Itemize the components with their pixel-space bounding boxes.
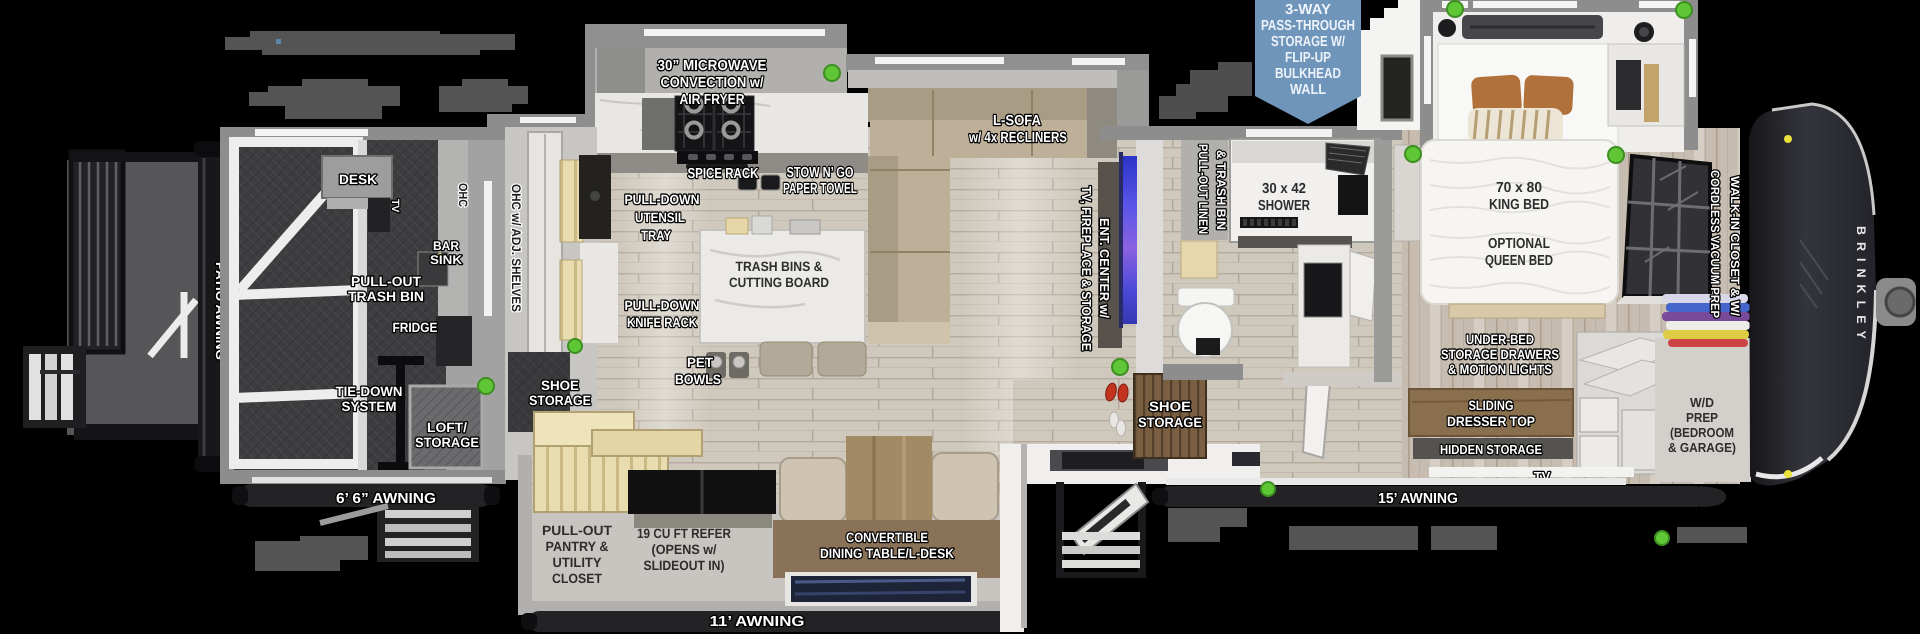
svg-text:SYSTEM: SYSTEM xyxy=(342,399,397,414)
svg-text:SLIDEOUT IN): SLIDEOUT IN) xyxy=(644,558,725,573)
svg-text:PANTRY &: PANTRY & xyxy=(546,539,609,554)
svg-text:W/D: W/D xyxy=(1690,395,1714,410)
svg-text:TRASH BIN: TRASH BIN xyxy=(348,289,424,304)
svg-text:PAPER TOWEL: PAPER TOWEL xyxy=(783,181,857,197)
svg-text:CONVERTIBLE: CONVERTIBLE xyxy=(846,530,928,545)
svg-text:BULKHEAD: BULKHEAD xyxy=(1275,66,1341,82)
svg-text:19 CU FT REFER: 19 CU FT REFER xyxy=(637,526,731,541)
svg-text:11’ AWNING: 11’ AWNING xyxy=(710,614,805,630)
svg-text:TV: TV xyxy=(389,199,401,212)
svg-text:STOW N’ GO: STOW N’ GO xyxy=(787,165,854,181)
svg-text:30 x 42: 30 x 42 xyxy=(1262,181,1306,197)
svg-text:DESK: DESK xyxy=(339,172,377,187)
svg-text:SPICE RACK: SPICE RACK xyxy=(688,166,759,182)
svg-text:OHC w/ ADJ. SHELVES: OHC w/ ADJ. SHELVES xyxy=(509,184,523,312)
svg-text:BAR: BAR xyxy=(433,239,459,253)
svg-text:30” MICROWAVE: 30” MICROWAVE xyxy=(658,58,767,74)
svg-text:OHC: OHC xyxy=(456,183,470,207)
svg-text:SHOE: SHOE xyxy=(541,378,579,393)
svg-text:PULL-OUT: PULL-OUT xyxy=(351,274,422,289)
svg-text:KNIFE RACK: KNIFE RACK xyxy=(627,315,697,330)
svg-text:STORAGE: STORAGE xyxy=(415,435,479,450)
svg-text:UNDER-BED: UNDER-BED xyxy=(1466,332,1534,347)
svg-text:LOFT/: LOFT/ xyxy=(427,420,467,435)
svg-text:STORAGE DRAWERS: STORAGE DRAWERS xyxy=(1441,347,1559,362)
svg-text:BOWLS: BOWLS xyxy=(675,372,721,387)
svg-text:PULL-DOWN: PULL-DOWN xyxy=(625,298,700,313)
svg-text:3-WAY: 3-WAY xyxy=(1285,2,1331,18)
svg-text:SINK: SINK xyxy=(430,253,462,267)
svg-text:STORAGE: STORAGE xyxy=(529,393,591,408)
svg-text:CORDLESS VACUUM PREP: CORDLESS VACUUM PREP xyxy=(1708,170,1722,318)
svg-text:TIE-DOWN: TIE-DOWN xyxy=(336,384,403,399)
svg-text:CONVECTION w/: CONVECTION w/ xyxy=(661,75,764,91)
svg-text:& GARAGE): & GARAGE) xyxy=(1668,440,1736,455)
svg-text:AIR FRYER: AIR FRYER xyxy=(680,92,745,108)
svg-text:FLIP-UP: FLIP-UP xyxy=(1285,50,1331,66)
svg-text:DINING TABLE/L-DESK: DINING TABLE/L-DESK xyxy=(820,546,954,561)
svg-text:PULL-OUT LINEN: PULL-OUT LINEN xyxy=(1196,144,1210,234)
svg-text:OPTIONAL: OPTIONAL xyxy=(1488,236,1550,252)
svg-text:PULL-OUT: PULL-OUT xyxy=(542,523,613,538)
svg-text:ENT. CENTER w/: ENT. CENTER w/ xyxy=(1097,218,1112,318)
svg-text:TV, FIREPLACE & STORAGE: TV, FIREPLACE & STORAGE xyxy=(1079,186,1094,351)
svg-text:SHOE: SHOE xyxy=(1149,399,1191,414)
svg-text:FRIDGE: FRIDGE xyxy=(393,320,438,335)
svg-text:SLIDING: SLIDING xyxy=(1469,398,1514,413)
svg-text:(BEDROOM: (BEDROOM xyxy=(1670,425,1734,440)
svg-text:UTENSIL: UTENSIL xyxy=(635,210,685,225)
svg-text:15’ AWNING: 15’ AWNING xyxy=(1378,491,1458,507)
svg-text:BRINKLEY: BRINKLEY xyxy=(1854,226,1868,346)
svg-text:70 x 80: 70 x 80 xyxy=(1496,180,1542,196)
svg-text:(OPENS w/: (OPENS w/ xyxy=(652,542,717,557)
svg-text:L-SOFA: L-SOFA xyxy=(993,113,1041,129)
svg-text:KING BED: KING BED xyxy=(1489,197,1549,213)
svg-text:w/ 4x RECLINERS: w/ 4x RECLINERS xyxy=(968,130,1067,146)
svg-text:WALK-IN CLOSET & W/: WALK-IN CLOSET & W/ xyxy=(1728,176,1742,317)
svg-text:SHOWER: SHOWER xyxy=(1258,198,1310,214)
svg-text:PREP: PREP xyxy=(1686,410,1718,425)
svg-text:CUTTING BOARD: CUTTING BOARD xyxy=(729,275,829,290)
svg-text:& TRASH BIN: & TRASH BIN xyxy=(1214,150,1228,230)
svg-text:PASS-THROUGH: PASS-THROUGH xyxy=(1261,18,1355,34)
svg-text:STORAGE W/: STORAGE W/ xyxy=(1271,34,1345,50)
svg-text:& MOTION LIGHTS: & MOTION LIGHTS xyxy=(1448,362,1552,377)
svg-text:UTILITY: UTILITY xyxy=(553,555,602,570)
svg-text:STORAGE: STORAGE xyxy=(1138,415,1202,430)
svg-text:TRASH BINS &: TRASH BINS & xyxy=(736,259,823,274)
svg-text:TRAY: TRAY xyxy=(641,228,671,243)
svg-text:DRESSER TOP: DRESSER TOP xyxy=(1447,414,1535,429)
svg-text:PULL-DOWN: PULL-DOWN xyxy=(625,192,700,207)
svg-text:PET: PET xyxy=(687,355,714,370)
svg-text:QUEEN BED: QUEEN BED xyxy=(1485,253,1553,269)
svg-text:CLOSET: CLOSET xyxy=(552,571,603,586)
svg-text:HIDDEN STORAGE: HIDDEN STORAGE xyxy=(1440,442,1542,457)
svg-text:WALL: WALL xyxy=(1290,82,1326,98)
